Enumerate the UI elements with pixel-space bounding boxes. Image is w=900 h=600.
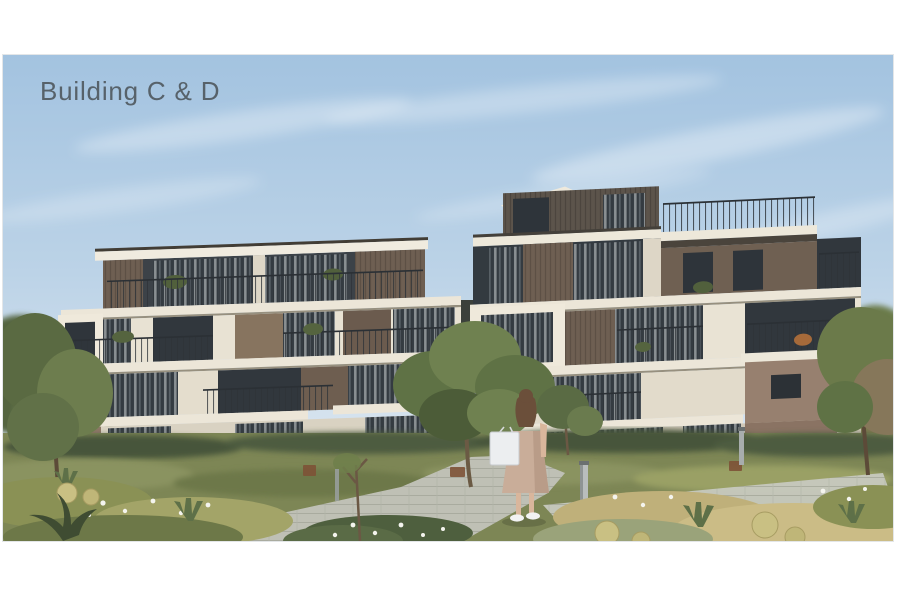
presentation-slide: Building C & D — [0, 0, 900, 600]
architectural-rendering: Building C & D — [3, 55, 893, 541]
rendering-scene — [3, 55, 893, 541]
page-title: Building C & D — [40, 76, 220, 107]
tote-bag — [490, 427, 519, 465]
